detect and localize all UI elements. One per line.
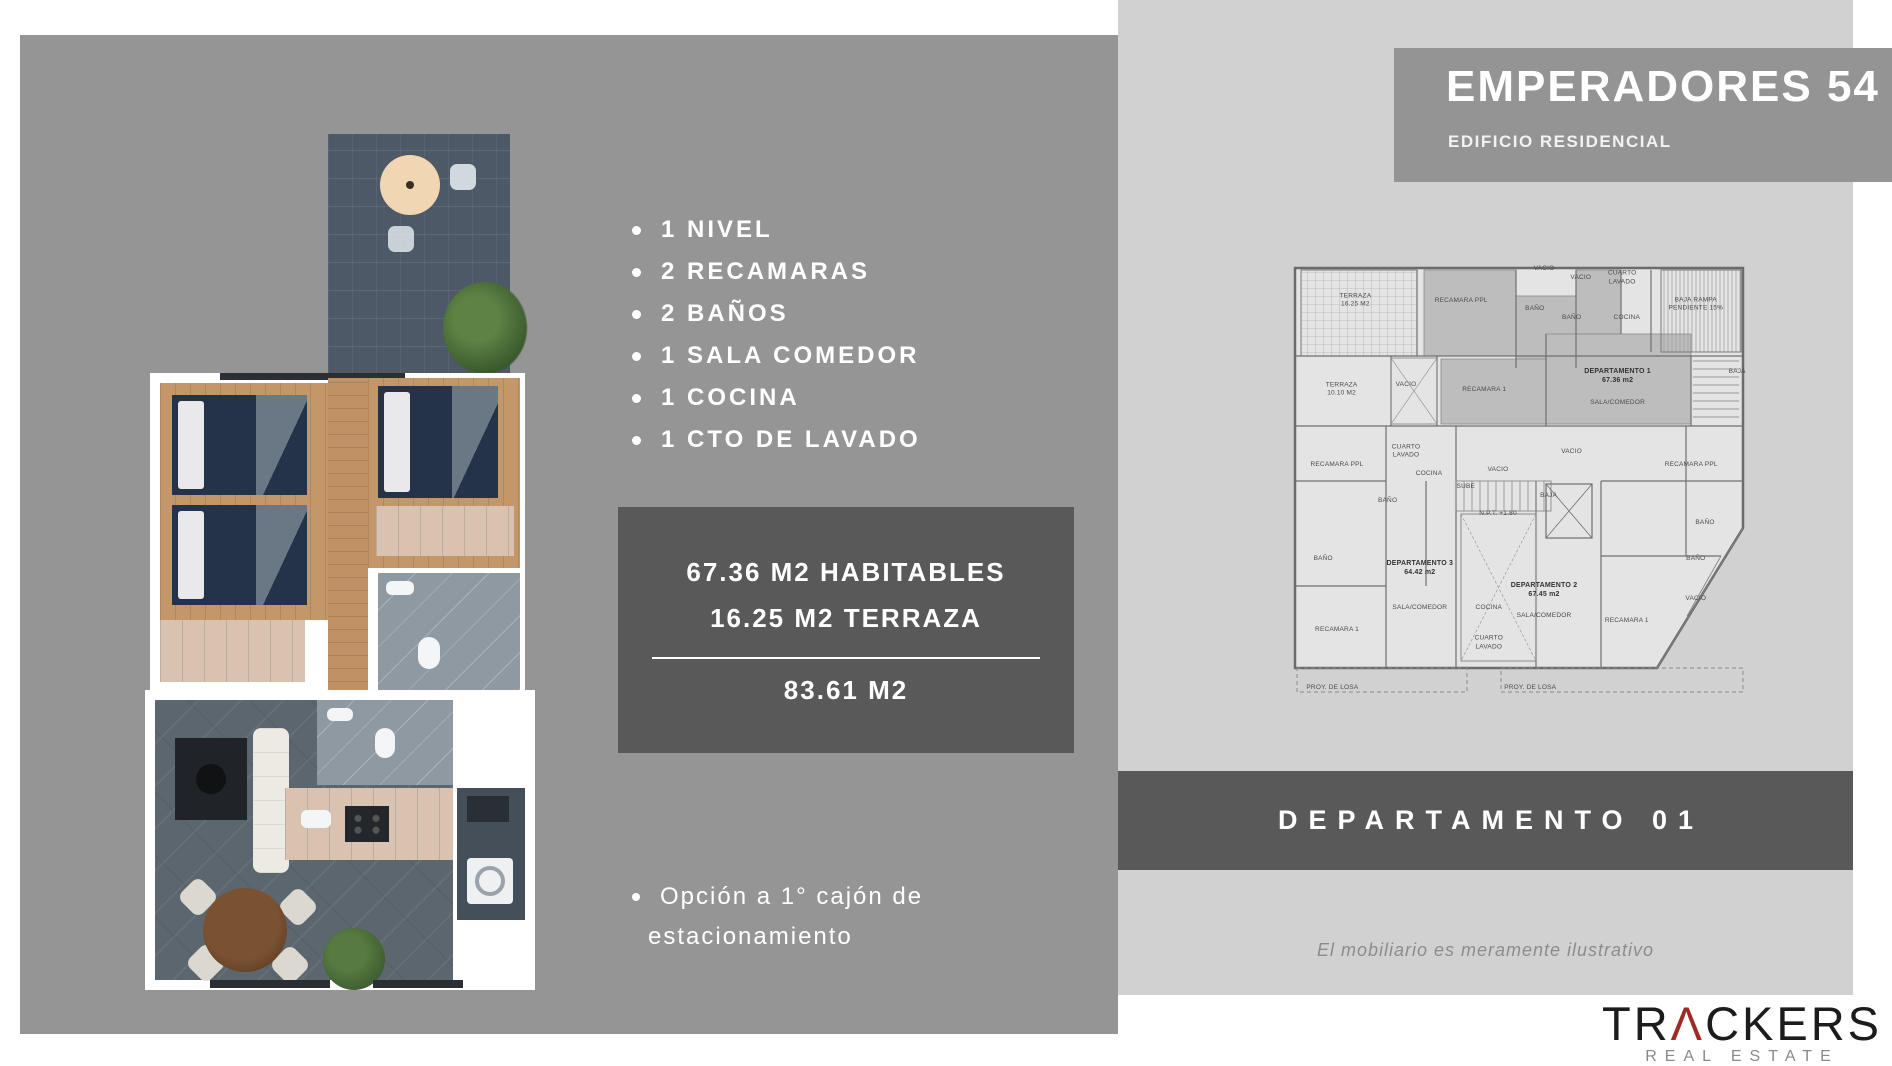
floorplan-room-label: BAÑO (1314, 554, 1333, 562)
single-bed (172, 395, 307, 495)
hallway-floor (328, 378, 368, 695)
floorplan-room-label: TERRAZA 16.25 M2 (1340, 292, 1372, 309)
feature-label: 2 RECAMARAS (661, 258, 870, 286)
floorplan-room-label: COCINA (1416, 470, 1442, 478)
features-list: 1 NIVEL2 RECAMARAS2 BAÑOS1 SALA COMEDOR1… (632, 215, 921, 467)
divider-line (652, 657, 1040, 659)
parking-note: Opción a 1° cajón de estacionamiento (632, 883, 923, 951)
stove (345, 806, 389, 842)
toilet (418, 637, 440, 669)
floorplan-room-label: VACIO (1488, 465, 1509, 473)
floorplan-room-label: SALA/COMEDOR (1392, 603, 1447, 611)
plant (443, 282, 527, 374)
floorplan-room-label: RECAMARA 1 (1462, 385, 1506, 393)
bullet-dot (632, 352, 641, 361)
bullet-dot (632, 394, 641, 403)
area-summary-box: 67.36 M2 HABITABLES 16.25 M2 TERRAZA 83.… (618, 507, 1074, 753)
trackers-wordmark: TRΛCKERS (1598, 1002, 1886, 1046)
bullet-dot (632, 310, 641, 319)
logo-lambda-accent: Λ (1671, 997, 1705, 1050)
floorplan-room-label: RECAMARA 1 (1315, 626, 1359, 634)
bedroom-secondary-floor (160, 383, 328, 620)
closet (376, 506, 514, 556)
appliance (467, 796, 509, 822)
bedroom-main-floor (368, 378, 520, 568)
floorplan-room-label: VACIO (1396, 381, 1417, 389)
feature-label: 1 CTO DE LAVADO (661, 426, 921, 454)
laundry-room (457, 788, 525, 920)
floorplan-room-label: COCINA (1476, 603, 1502, 611)
left-panel: 1 NIVEL2 RECAMARAS2 BAÑOS1 SALA COMEDOR1… (20, 35, 1118, 1034)
feature-item: 1 SALA COMEDOR (632, 341, 921, 371)
coffee-table (175, 738, 247, 820)
feature-label: 2 BAÑOS (661, 300, 789, 328)
bedrooms-block (150, 373, 525, 695)
feature-item: 1 NIVEL (632, 215, 921, 245)
unit-banner-label: DEPARTAMENTO 01 (1267, 805, 1704, 836)
area-habitables: 67.36 M2 HABITABLES (618, 549, 1074, 595)
sink (386, 581, 414, 595)
floorplan-room-label: N.P.T. +1.80 (1479, 510, 1517, 518)
bullet-dot (632, 226, 641, 235)
feature-label: 1 SALA COMEDOR (661, 342, 919, 370)
washer (467, 858, 513, 904)
floorplan-room-label: CUARTO LAVADO (1608, 270, 1636, 287)
closet (160, 620, 305, 682)
floorplan-room-label: VACIO (1685, 594, 1706, 602)
single-bed (172, 505, 307, 605)
living-block (145, 690, 535, 990)
floorplan-room-label: SALA/COMEDOR (1517, 612, 1572, 620)
floorplan-room-label: BAÑO (1378, 497, 1397, 505)
kitchen-counter (285, 788, 453, 860)
toilet (375, 728, 395, 758)
sofa (253, 728, 289, 873)
round-rug (380, 155, 440, 215)
bathroom-1 (378, 573, 520, 691)
floorplan-room-label: RECAMARA 1 (1605, 617, 1649, 625)
trackers-logo: TRΛCKERS REAL ESTATE (1598, 1002, 1886, 1052)
bullet-dot (632, 436, 641, 445)
unit-banner: DEPARTAMENTO 01 (1118, 771, 1853, 870)
floorplan-room-label: SUBE (1457, 483, 1476, 491)
floorplan-room-label: BAJA (1540, 492, 1557, 500)
floorplan-room-label: CUARTO LAVADO (1475, 635, 1503, 652)
building-floorplan-drawing: TERRAZA 16.25 M2RECAMARA PPLVACIOVACIOCU… (1291, 256, 1751, 701)
dining-table (203, 888, 287, 972)
floorplan-room-label: COCINA (1614, 314, 1640, 322)
floorplan-room-label: DEPARTAMENTO 2 67.45 m2 (1511, 581, 1578, 599)
floorplan-room-label: PROY. DE LOSA (1504, 683, 1556, 691)
floorplan-room-label: CUARTO LAVADO (1392, 443, 1420, 460)
double-bed (378, 386, 498, 498)
bullet-dot (632, 268, 641, 277)
floorplan-room-label: VACIO (1534, 265, 1555, 273)
floorplan-room-label: DEPARTAMENTO 3 64.42 m2 (1387, 558, 1454, 576)
feature-item: 1 CTO DE LAVADO (632, 425, 921, 455)
furniture-disclaimer: El mobiliario es meramente ilustrativo (1118, 940, 1853, 961)
sliding-door (373, 980, 463, 988)
kitchen-sink (301, 810, 331, 828)
terrace-chair (388, 226, 414, 252)
floorplan-room-label: TERRAZA 10.10 M2 (1326, 381, 1358, 398)
bullet-dot (632, 893, 640, 901)
unit-render-top-view (145, 134, 535, 990)
floorplan-room-label: BAJA RAMPA PENDIENTE 15% (1668, 297, 1723, 314)
floorplan-room-label: VACIO (1561, 448, 1582, 456)
terrace-chair (450, 164, 476, 190)
sink (327, 708, 353, 721)
floorplan-room-label: RECAMARA PPL (1311, 461, 1364, 469)
sliding-door (210, 980, 330, 988)
logo-tagline: REAL ESTATE (1598, 1048, 1886, 1066)
project-subtitle: EDIFICIO RESIDENCIAL (1448, 132, 1672, 152)
area-total: 83.61 M2 (618, 675, 1074, 706)
floorplan-room-label: DEPARTAMENTO 1 67.36 m2 (1584, 367, 1651, 385)
floorplan-room-label: RECAMARA PPL (1665, 461, 1718, 469)
floorplan-room-label: BAÑO (1562, 314, 1581, 322)
parking-note-line2: estacionamiento (648, 923, 923, 951)
floorplan-labels-layer: TERRAZA 16.25 M2RECAMARA PPLVACIOVACIOCU… (1291, 256, 1751, 701)
floorplan-room-label: BAÑO (1525, 305, 1544, 313)
feature-label: 1 COCINA (661, 384, 800, 412)
floorplan-room-label: BAÑO (1695, 519, 1714, 527)
feature-item: 2 BAÑOS (632, 299, 921, 329)
area-terraza: 16.25 M2 TERRAZA (618, 595, 1074, 641)
feature-item: 2 RECAMARAS (632, 257, 921, 287)
feature-label: 1 NIVEL (661, 216, 773, 244)
floorplan-room-label: RECAMARA PPL (1435, 296, 1488, 304)
feature-item: 1 COCINA (632, 383, 921, 413)
floorplan-room-label: SALA/COMEDOR (1590, 399, 1645, 407)
floorplan-room-label: BAJA (1729, 367, 1746, 375)
project-title-card: EMPERADORES 54 EDIFICIO RESIDENCIAL (1394, 48, 1892, 182)
floorplan-room-label: BAÑO (1686, 554, 1705, 562)
floorplan-room-label: VACIO (1570, 274, 1591, 282)
parking-note-line1: Opción a 1° cajón de (660, 883, 923, 911)
floorplan-room-label: PROY. DE LOSA (1306, 683, 1358, 691)
project-title: EMPERADORES 54 (1446, 62, 1880, 112)
bathroom-2 (317, 700, 453, 785)
